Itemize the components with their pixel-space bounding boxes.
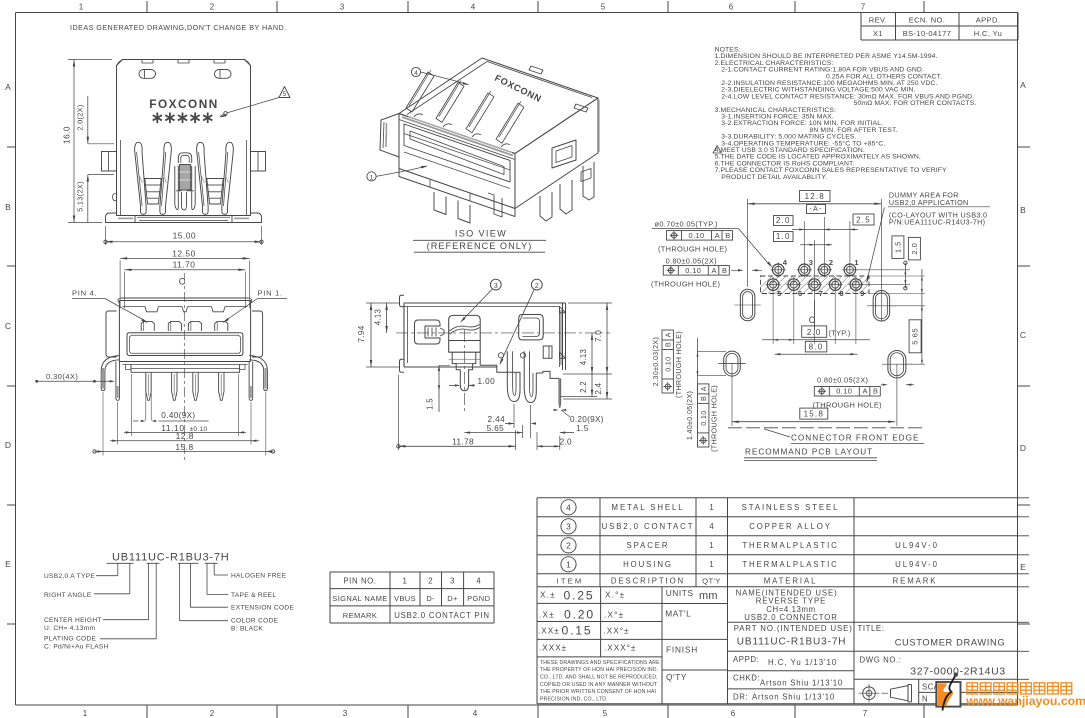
svg-text:2.0(2X): 2.0(2X) — [76, 104, 85, 130]
svg-text:5: 5 — [283, 91, 287, 98]
svg-text:E: E — [5, 559, 11, 569]
svg-text:U: CH= 4.13mm: U: CH= 4.13mm — [44, 625, 96, 632]
svg-text:11.70: 11.70 — [173, 260, 196, 270]
svg-text:B: BLACK: B: BLACK — [231, 625, 263, 632]
svg-text:B: B — [664, 342, 673, 347]
svg-text:A: A — [715, 231, 720, 240]
svg-text:THESE DRAWINGS AND SPECIFICATI: THESE DRAWINGS AND SPECIFICATIONS ARE — [540, 660, 660, 666]
svg-text:7: 7 — [861, 3, 866, 12]
svg-text:C: C — [1020, 330, 1026, 340]
svg-text:USB2,0 A TYPE: USB2,0 A TYPE — [44, 573, 95, 580]
svg-text:4: 4 — [566, 502, 571, 512]
svg-text:PIN 1.: PIN 1. — [258, 289, 283, 298]
svg-text:UB111UC-R1BU3-7H: UB111UC-R1BU3-7H — [112, 552, 230, 564]
svg-text:5: 5 — [601, 3, 606, 12]
svg-text:3: 3 — [494, 283, 498, 290]
svg-text:B: B — [1020, 205, 1026, 215]
svg-text:RECOMMAND PCB LAYOUT: RECOMMAND PCB LAYOUT — [745, 448, 873, 457]
svg-text:4.13: 4.13 — [579, 349, 588, 365]
svg-text:12.8: 12.8 — [805, 192, 825, 201]
svg-text:THE PRIOR WRITTEN CONSENT OF H: THE PRIOR WRITTEN CONSENT OF HON HAI — [540, 689, 656, 695]
svg-text:DR:: DR: — [733, 693, 748, 702]
svg-text:2: 2 — [210, 3, 215, 12]
svg-text:C: C — [179, 277, 186, 288]
svg-text:0.10: 0.10 — [664, 357, 673, 372]
svg-text:50mΩ MAX. FOR OTHER CONTACTS.: 50mΩ MAX. FOR OTHER CONTACTS. — [854, 100, 977, 107]
svg-text:5.65: 5.65 — [911, 328, 920, 345]
svg-text:C: C — [5, 321, 11, 331]
svg-text:1.5: 1.5 — [576, 424, 588, 433]
svg-text:H.C, Yu: H.C, Yu — [974, 29, 1003, 38]
svg-text:7.94: 7.94 — [357, 325, 366, 342]
svg-text:.XX±: .XX± — [538, 627, 560, 636]
svg-text:0.80±0.05(2X): 0.80±0.05(2X) — [817, 375, 868, 384]
svg-text:7: 7 — [819, 289, 823, 298]
svg-text:8.0: 8.0 — [809, 343, 824, 352]
svg-text:EXTENSION CODE: EXTENSION CODE — [231, 605, 294, 612]
svg-text:Q'TY: Q'TY — [666, 672, 687, 682]
svg-text:4: 4 — [414, 70, 418, 77]
svg-text:1: 1 — [709, 541, 713, 550]
svg-text:2: 2 — [566, 540, 571, 550]
svg-text:DESCRIPTION: DESCRIPTION — [611, 576, 685, 585]
svg-text:0.80±0.05(2X): 0.80±0.05(2X) — [666, 256, 717, 265]
svg-text:UB111UC-R1BU3-7H: UB111UC-R1BU3-7H — [737, 637, 847, 648]
svg-text:0.20(9X): 0.20(9X) — [570, 415, 604, 424]
svg-text:COLOR CODE: COLOR CODE — [231, 618, 279, 625]
svg-text:8: 8 — [839, 289, 843, 298]
svg-text:A: A — [664, 332, 673, 337]
svg-text:.XXX±: .XXX± — [539, 643, 567, 652]
svg-text:1: 1 — [566, 559, 571, 569]
svg-text:X.°±: X.°± — [605, 591, 625, 600]
svg-text:CONNECTOR FRONT EDGE: CONNECTOR FRONT EDGE — [791, 434, 919, 443]
svg-text:CUSTOMER DRAWING: CUSTOMER DRAWING — [895, 638, 1006, 648]
svg-text:2.2: 2.2 — [579, 381, 588, 393]
svg-text:1: 1 — [79, 3, 84, 12]
svg-text:APPD.: APPD. — [976, 16, 1001, 25]
svg-text:mm: mm — [699, 590, 718, 602]
svg-text:0.10: 0.10 — [836, 387, 852, 396]
svg-text:2: 2 — [210, 709, 215, 718]
svg-text:A: A — [712, 266, 717, 275]
svg-text:UNITS: UNITS — [666, 588, 694, 598]
svg-text:2.30±0.03(2X): 2.30±0.03(2X) — [651, 337, 660, 386]
svg-text:ITEM: ITEM — [557, 576, 584, 585]
svg-text:E: E — [1020, 562, 1026, 572]
svg-text:D-: D- — [426, 594, 435, 603]
svg-text:6: 6 — [729, 3, 734, 12]
svg-text:1: 1 — [370, 174, 374, 181]
svg-text:www.wanjiayou.com: www.wanjiayou.com — [965, 694, 1085, 708]
svg-text:7.0: 7.0 — [594, 330, 603, 342]
svg-text:A: A — [699, 386, 708, 391]
svg-text:N: N — [922, 695, 928, 704]
svg-text:327-0000-2R14U3: 327-0000-2R14U3 — [910, 666, 1005, 678]
svg-text:UL94V-0: UL94V-0 — [895, 560, 939, 569]
svg-text:D: D — [5, 440, 11, 450]
svg-text:0.20: 0.20 — [564, 608, 595, 622]
svg-text:STAINLESS STEEL: STAINLESS STEEL — [742, 503, 840, 512]
svg-text:1: 1 — [709, 503, 713, 512]
svg-text:2.44: 2.44 — [488, 415, 506, 424]
svg-text:12.8: 12.8 — [176, 431, 194, 441]
svg-text:1.00: 1.00 — [478, 377, 496, 386]
svg-text:15.8: 15.8 — [804, 410, 824, 419]
svg-text:A: A — [5, 82, 11, 92]
svg-text:0.10: 0.10 — [689, 231, 705, 240]
svg-text:CO., LTD. AND SHALL NOT BE REP: CO., LTD. AND SHALL NOT BE REPRODUCED, — [540, 675, 658, 681]
svg-text:SIGNAL NAME: SIGNAL NAME — [332, 594, 387, 603]
svg-text:DWG NO.:: DWG NO.: — [860, 656, 902, 665]
svg-text:USB2.0 CONTACT PIN: USB2.0 CONTACT PIN — [394, 611, 490, 620]
svg-text:0.25: 0.25 — [564, 589, 595, 603]
svg-text:2.0: 2.0 — [776, 216, 791, 225]
svg-text:PIN NO.: PIN NO. — [343, 577, 376, 586]
svg-text:X.±: X.± — [540, 591, 556, 600]
svg-text:PRECISION IND. CO., LTD.: PRECISION IND. CO., LTD. — [540, 697, 608, 703]
svg-text:11.78: 11.78 — [452, 436, 474, 446]
svg-text:MAT'L: MAT'L — [665, 608, 691, 618]
svg-text:16.0: 16.0 — [62, 126, 71, 144]
svg-text:QT'Y: QT'Y — [702, 576, 721, 585]
svg-text:6: 6 — [798, 289, 802, 298]
svg-text:2.0: 2.0 — [560, 437, 572, 446]
svg-text:1: 1 — [403, 577, 408, 586]
svg-text:THERMALPLASTIC: THERMALPLASTIC — [742, 560, 838, 569]
svg-text:B: B — [725, 231, 730, 240]
svg-text:B: B — [722, 266, 727, 275]
svg-text:A: A — [1020, 80, 1026, 90]
svg-text:4: 4 — [476, 577, 481, 586]
svg-text:2: 2 — [428, 577, 433, 586]
svg-text:B: B — [873, 387, 878, 396]
svg-text:-A-: -A- — [809, 204, 822, 213]
svg-text:(THROUGH HOLE): (THROUGH HOLE) — [674, 331, 683, 398]
svg-text:UL94V-0: UL94V-0 — [895, 541, 939, 550]
svg-text:1.40±0.05(2X): 1.40±0.05(2X) — [685, 391, 694, 440]
svg-text:REMARK: REMARK — [343, 611, 378, 620]
svg-text:THE PROPERTY OF HON HAI PRECIS: THE PROPERTY OF HON HAI PRECISION IND. — [540, 667, 658, 673]
svg-text:12.50: 12.50 — [172, 248, 195, 258]
svg-text:USB2.0 CONNECTOR: USB2.0 CONNECTOR — [744, 613, 838, 622]
svg-text:(REFERENCE ONLY): (REFERENCE ONLY) — [427, 241, 533, 251]
svg-text:2: 2 — [829, 258, 833, 267]
svg-text:5: 5 — [603, 709, 608, 718]
svg-text:IDEAS GENERATED DRAWING,DON'T: IDEAS GENERATED DRAWING,DON'T CHANGE BY … — [70, 23, 287, 32]
svg-text:X1: X1 — [873, 29, 883, 38]
svg-text:5: 5 — [777, 289, 781, 298]
svg-text:B: B — [5, 202, 11, 212]
svg-text:B: B — [699, 396, 708, 401]
svg-text:BS-10-04177: BS-10-04177 — [903, 29, 952, 38]
svg-text:2.0: 2.0 — [910, 243, 919, 255]
svg-text:TITLE:: TITLE: — [858, 624, 885, 633]
svg-text:ISO VIEW: ISO VIEW — [455, 229, 507, 239]
svg-text:0.30(4X): 0.30(4X) — [46, 372, 78, 381]
svg-text:REMARK: REMARK — [893, 576, 938, 585]
svg-text:Artson Shiu 1/13'10: Artson Shiu 1/13'10 — [760, 678, 843, 687]
svg-text:.X°±: .X°± — [604, 611, 624, 620]
svg-text:0.15: 0.15 — [562, 624, 593, 638]
svg-text:3: 3 — [343, 709, 348, 718]
svg-text:4: 4 — [709, 522, 714, 531]
svg-text:C: Pd/Ni+Au FLASH: C: Pd/Ni+Au FLASH — [44, 644, 109, 651]
svg-text:6: 6 — [731, 709, 736, 718]
svg-text:1.5: 1.5 — [894, 241, 903, 253]
svg-text:COPIED OR USED IN ANY MANNER W: COPIED OR USED IN ANY MANNER WITHOUT — [540, 682, 658, 688]
svg-text:USB2,0 CONTACT: USB2,0 CONTACT — [602, 522, 695, 531]
svg-text:1.5: 1.5 — [426, 398, 435, 410]
svg-text:PLATING CODE: PLATING CODE — [44, 635, 97, 642]
svg-text:P/N:UEA111UC-R14U3-7H): P/N:UEA111UC-R14U3-7H) — [889, 217, 986, 226]
svg-text:1: 1 — [83, 709, 88, 718]
svg-text:.XX°±: .XX°± — [604, 627, 630, 636]
svg-text:SPACER: SPACER — [627, 541, 670, 550]
svg-text:2: 2 — [535, 283, 539, 290]
svg-text:(THROUGH HOLE): (THROUGH HOLE) — [651, 279, 720, 288]
svg-text:HOUSING: HOUSING — [623, 560, 673, 569]
svg-text:0.40(9X): 0.40(9X) — [161, 411, 195, 420]
svg-text:4: 4 — [473, 709, 478, 718]
svg-text:5.65: 5.65 — [487, 424, 505, 433]
svg-text:2.5: 2.5 — [856, 216, 871, 225]
svg-text:FOXCONN: FOXCONN — [149, 97, 219, 111]
svg-text:A: A — [863, 387, 868, 396]
svg-text:(THROUGH HOLE): (THROUGH HOLE) — [710, 385, 719, 452]
svg-text:3: 3 — [450, 577, 455, 586]
svg-text:1: 1 — [854, 258, 858, 267]
svg-text:APPD:: APPD: — [733, 655, 759, 664]
svg-text:TAPE & REEL: TAPE & REEL — [231, 592, 276, 599]
svg-text:MATERIAL: MATERIAL — [764, 576, 818, 585]
svg-text:.X±: .X± — [539, 611, 555, 620]
svg-text:CENTER HEIGHT: CENTER HEIGHT — [44, 617, 102, 624]
svg-text:ø0.70±0.05(TYP.): ø0.70±0.05(TYP.) — [655, 220, 718, 229]
svg-text:COPPER ALLOY: COPPER ALLOY — [749, 522, 832, 531]
svg-text:2.0: 2.0 — [807, 328, 822, 337]
svg-text:PART NO.(INTENDED USE): PART NO.(INTENDED USE) — [734, 624, 853, 633]
svg-text:CHKD:: CHKD: — [733, 674, 760, 683]
svg-text:1: 1 — [709, 560, 713, 569]
svg-text:3: 3 — [566, 521, 571, 531]
svg-text:VBUS: VBUS — [394, 594, 416, 603]
svg-text:(TYP.): (TYP.) — [829, 328, 851, 337]
svg-text:.XXX°±: .XXX°± — [604, 643, 636, 652]
svg-text:2.4: 2.4 — [594, 382, 603, 394]
svg-text:METAL SHELL: METAL SHELL — [612, 503, 685, 512]
svg-text:4.13: 4.13 — [374, 309, 383, 325]
svg-text:15.8: 15.8 — [175, 442, 193, 452]
svg-text:0.10: 0.10 — [699, 410, 708, 425]
svg-text:PIN 4.: PIN 4. — [72, 289, 97, 298]
svg-text:REV.: REV. — [869, 16, 887, 25]
svg-text:4: 4 — [471, 3, 476, 12]
svg-text:PRODUCT DETAIL AVAILABLITY.: PRODUCT DETAIL AVAILABLITY. — [721, 174, 827, 181]
svg-text:15.00: 15.00 — [173, 231, 196, 241]
svg-text:RIGHT ANGLE: RIGHT ANGLE — [44, 592, 92, 599]
svg-text:USB2,0 APPLICATION: USB2,0 APPLICATION — [889, 198, 969, 207]
svg-text:FINISH: FINISH — [666, 644, 698, 654]
svg-text:3: 3 — [340, 3, 345, 12]
svg-text:PGND: PGND — [467, 594, 490, 603]
svg-text:(THROUGH HOLE): (THROUGH HOLE) — [658, 244, 727, 253]
svg-text:0.10: 0.10 — [685, 266, 701, 275]
svg-text:7: 7 — [863, 709, 868, 718]
svg-text:ECN. NO.: ECN. NO. — [909, 16, 946, 25]
svg-text:H.C, Yu 1/13'10: H.C, Yu 1/13'10 — [768, 658, 837, 667]
svg-text:HALOGEN FREE: HALOGEN FREE — [231, 573, 287, 580]
svg-text:Artson Shiu 1/13'10: Artson Shiu 1/13'10 — [752, 693, 835, 702]
svg-text:THERMALPLASTIC: THERMALPLASTIC — [742, 541, 838, 550]
svg-text:D: D — [1020, 443, 1026, 453]
svg-text:1.0: 1.0 — [776, 232, 791, 241]
svg-text:5.13(2X): 5.13(2X) — [76, 181, 85, 212]
svg-text:9: 9 — [860, 289, 864, 298]
svg-text:D+: D+ — [447, 594, 458, 603]
svg-text:3: 3 — [809, 258, 813, 267]
